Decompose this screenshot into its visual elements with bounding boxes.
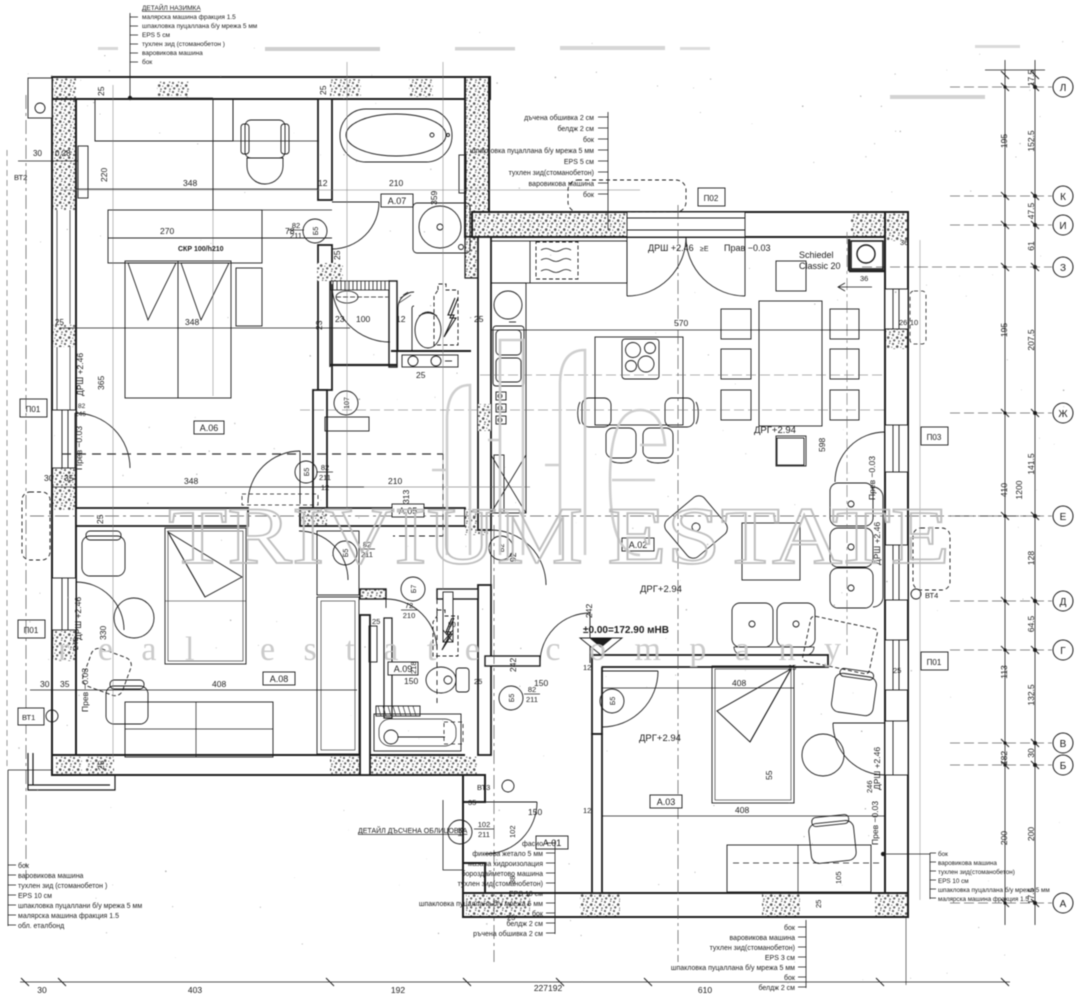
svg-text:Б5: Б5 <box>610 697 617 706</box>
svg-text:ДРГ+2.94: ДРГ+2.94 <box>754 425 796 436</box>
svg-text:П03: П03 <box>927 433 942 442</box>
svg-text:0.28: 0.28 <box>55 149 71 158</box>
svg-text:100: 100 <box>356 314 370 324</box>
svg-text:варовикова машина: варовикова машина <box>938 860 997 867</box>
svg-text:25: 25 <box>893 666 901 675</box>
svg-text:Прав −0.03: Прав −0.03 <box>724 243 771 253</box>
svg-text:бок: бок <box>18 862 30 870</box>
svg-text:35: 35 <box>468 798 476 807</box>
svg-text:бок: бок <box>532 910 544 918</box>
svg-text:П02: П02 <box>704 194 719 203</box>
svg-text:30: 30 <box>1026 748 1036 758</box>
svg-text:ДЕТАЙЛ ДЪСЧЕНА ОБЛИЦОВКА: ДЕТАЙЛ ДЪСЧЕНА ОБЛИЦОВКА <box>358 826 468 835</box>
svg-text:192: 192 <box>391 985 405 995</box>
svg-text:TRIVIUM ESTATE: TRIVIUM ESTATE <box>168 490 950 581</box>
svg-text:210: 210 <box>403 611 416 620</box>
svg-text:Classic 20: Classic 20 <box>799 261 841 271</box>
svg-text:шпакловка пуцаллана б/у мрежа: шпакловка пуцаллана б/у мрежа 5 мм <box>671 964 795 972</box>
svg-text:обл. еталбонд: обл. еталбонд <box>18 922 64 930</box>
svg-text:Прев −0.03: Прев −0.03 <box>870 801 880 845</box>
svg-text:30: 30 <box>37 985 47 995</box>
svg-text:мазана хидроизолация: мазана хидроизолация <box>468 861 543 868</box>
svg-text:64.5: 64.5 <box>1026 615 1036 632</box>
svg-text:408: 408 <box>732 678 746 688</box>
svg-text:25: 25 <box>95 514 105 524</box>
svg-text:132.5: 132.5 <box>1026 684 1036 706</box>
svg-text:25: 25 <box>474 677 482 686</box>
svg-text:12: 12 <box>583 806 591 815</box>
svg-text:EPS 5 см: EPS 5 см <box>142 32 170 39</box>
svg-text:55: 55 <box>764 770 774 780</box>
svg-text:Ж: Ж <box>1058 409 1068 420</box>
svg-text:EPS 10 см: EPS 10 см <box>18 893 52 900</box>
svg-text:Г: Г <box>1060 646 1066 657</box>
svg-text:113: 113 <box>999 665 1009 679</box>
svg-text:246: 246 <box>865 780 874 793</box>
svg-text:шпакловка пуцаллана б/у мрежа: шпакловка пуцаллана б/у мрежа 5 мм <box>938 886 1050 894</box>
svg-text:207.5: 207.5 <box>1026 329 1036 351</box>
svg-text:тухлен зид(стоманобетон): тухлен зид(стоманобетон) <box>938 868 1015 876</box>
svg-text:EPS 10 см: EPS 10 см <box>938 878 969 885</box>
svg-text:шпакловка пуцаллана б/у мрежа: шпакловка пуцаллана б/у мрежа 5 мм <box>470 147 594 155</box>
svg-text:570: 570 <box>674 318 688 328</box>
svg-text:128: 128 <box>1026 551 1036 565</box>
svg-text:598: 598 <box>817 438 827 452</box>
svg-text:78: 78 <box>285 226 295 236</box>
svg-text:варовикова машина: варовикова машина <box>730 935 796 942</box>
svg-text:ВТ3: ВТ3 <box>477 783 490 792</box>
svg-text:408: 408 <box>735 805 749 815</box>
svg-text:47.5: 47.5 <box>1026 202 1036 219</box>
svg-text:218: 218 <box>409 661 418 674</box>
svg-text:348: 348 <box>185 317 199 327</box>
svg-text:бок: бок <box>784 974 796 982</box>
svg-text:ВТ2: ВТ2 <box>14 173 27 182</box>
svg-text:365: 365 <box>96 376 106 390</box>
svg-text:25: 25 <box>474 314 484 324</box>
svg-text:A.08: A.08 <box>270 674 289 684</box>
svg-text:Прев −0.03: Прев −0.03 <box>74 426 84 470</box>
svg-text:А: А <box>1060 899 1067 910</box>
svg-text:348: 348 <box>184 476 198 486</box>
svg-text:25: 25 <box>416 370 426 380</box>
svg-text:359: 359 <box>429 191 439 205</box>
svg-text:246: 246 <box>75 411 86 418</box>
svg-text:210: 210 <box>389 178 403 188</box>
svg-text:фиксова жетало 5 мм: фиксова жетало 5 мм <box>472 851 543 858</box>
svg-text:25: 25 <box>55 318 64 327</box>
svg-text:72: 72 <box>405 601 413 610</box>
svg-text:61: 61 <box>1026 241 1036 251</box>
svg-text:195: 195 <box>999 134 1009 148</box>
svg-text:белдж 2 см: белдж 2 см <box>557 125 594 133</box>
svg-text:408: 408 <box>212 679 226 689</box>
svg-text:дъчена обшивка 2 см: дъчена обшивка 2 см <box>524 114 594 122</box>
svg-text:141.5: 141.5 <box>1026 453 1036 475</box>
svg-text:ДРШ +2.46: ДРШ +2.46 <box>75 353 85 396</box>
svg-text:тухлен зид (стоманобетон ): тухлен зид (стоманобетон ) <box>142 40 225 48</box>
svg-text:бок: бок <box>583 191 595 199</box>
svg-text:бок: бок <box>938 850 948 858</box>
svg-text:107: 107 <box>344 397 351 409</box>
svg-text:Б7: Б7 <box>411 585 418 594</box>
svg-text:К: К <box>1060 192 1066 203</box>
svg-text:220: 220 <box>99 168 109 182</box>
svg-text:Б5: Б5 <box>304 468 311 477</box>
svg-text:200: 200 <box>1026 827 1036 841</box>
svg-text:610: 610 <box>698 985 712 995</box>
svg-text:малярска машина фракция 1.5: малярска машина фракция 1.5 <box>938 896 1029 903</box>
svg-text:бок: бок <box>784 924 796 932</box>
svg-text:210: 210 <box>388 476 402 486</box>
svg-text:30: 30 <box>40 679 50 689</box>
svg-text:150: 150 <box>534 678 548 688</box>
svg-text:Schiedel: Schiedel <box>799 250 834 260</box>
svg-text:шпакловка пуцаллана б/у мрежа: шпакловка пуцаллана б/у мрежа 5 мм <box>419 900 543 908</box>
svg-text:82: 82 <box>321 463 329 472</box>
svg-text:102: 102 <box>478 820 491 829</box>
svg-text:25: 25 <box>332 250 342 260</box>
svg-text:12: 12 <box>396 314 406 324</box>
svg-text:бок: бок <box>583 136 595 144</box>
svg-text:Л: Л <box>1060 83 1067 94</box>
svg-text:Д: Д <box>1060 597 1067 608</box>
svg-text:150: 150 <box>528 807 542 817</box>
svg-text:36: 36 <box>860 274 868 283</box>
svg-text:варовикова машина: варовикова машина <box>142 50 203 57</box>
svg-text:ДРШ +2.46: ДРШ +2.46 <box>648 243 694 253</box>
svg-text:П01: П01 <box>927 658 942 667</box>
svg-text:227192: 227192 <box>534 983 563 993</box>
svg-text:тухлен зид(стоманобетон): тухлен зид(стоманобетон) <box>710 944 795 952</box>
svg-text:17.5: 17.5 <box>1026 69 1036 86</box>
svg-text:Б: Б <box>1060 761 1067 772</box>
svg-text:белдж 2 см: белдж 2 см <box>758 984 795 992</box>
svg-text:шпакловка пуцаллани б/у мрежа: шпакловка пуцаллани б/у мрежа 5 мм <box>18 902 142 910</box>
svg-text:A.03: A.03 <box>657 797 676 807</box>
svg-text:35: 35 <box>60 679 70 689</box>
svg-text:23: 23 <box>314 320 324 330</box>
svg-text:Б5: Б5 <box>313 227 320 236</box>
svg-text:EPS 5 см: EPS 5 см <box>564 159 594 166</box>
svg-text:30: 30 <box>33 149 42 158</box>
svg-text:EPS 10 см: EPS 10 см <box>509 891 543 898</box>
svg-text:25: 25 <box>96 86 106 96</box>
svg-text:ВТ4: ВТ4 <box>925 591 938 600</box>
svg-text:малярска машина фракция 1.5: малярска машина фракция 1.5 <box>142 14 236 21</box>
svg-text:ВТ1: ВТ1 <box>22 713 35 722</box>
svg-text:102: 102 <box>508 825 517 838</box>
svg-text:12: 12 <box>318 178 328 188</box>
svg-text:25: 25 <box>372 617 380 626</box>
svg-text:211: 211 <box>526 695 538 704</box>
svg-text:белдж 2 см: белдж 2 см <box>506 920 543 928</box>
svg-text:26-10: 26-10 <box>899 318 918 327</box>
svg-text:270: 270 <box>160 226 174 236</box>
svg-text:ръчена обшивка 2 см: ръчена обшивка 2 см <box>473 930 543 938</box>
svg-text:Е: Е <box>1060 512 1067 523</box>
svg-text:30: 30 <box>44 473 54 483</box>
svg-text:ДРГ+2.94: ДРГ+2.94 <box>640 584 682 595</box>
svg-text:варовикова машина: варовикова машина <box>18 873 84 880</box>
svg-text:A.07: A.07 <box>388 196 407 206</box>
svg-text:СКР 100/h210: СКР 100/h210 <box>178 246 224 253</box>
svg-text:23: 23 <box>335 314 345 324</box>
svg-text:36: 36 <box>900 238 908 247</box>
svg-text:348: 348 <box>183 178 197 188</box>
svg-text:И: И <box>1059 221 1066 232</box>
svg-text:50: 50 <box>448 622 456 629</box>
svg-text:211: 211 <box>319 473 331 482</box>
svg-text:242: 242 <box>584 604 594 618</box>
svg-text:шпакловка пуцаллана б/у мрежа: шпакловка пуцаллана б/у мрежа 5 мм <box>142 22 258 30</box>
svg-text:82: 82 <box>78 403 86 410</box>
svg-text:тухлен зид (стоманобетон ): тухлен зид (стоманобетон ) <box>18 882 107 890</box>
svg-text:фасио: фасио <box>522 841 543 848</box>
svg-text:A.06: A.06 <box>200 423 219 433</box>
svg-text:≥Е: ≥Е <box>700 246 709 253</box>
svg-text:Прев −0.03: Прев −0.03 <box>80 668 90 712</box>
svg-text:403: 403 <box>188 985 202 995</box>
svg-text:варовикова машина: варовикова машина <box>529 181 595 188</box>
svg-text:182: 182 <box>999 751 1009 765</box>
svg-text:Б5: Б5 <box>509 694 516 703</box>
svg-text:тухлен зид(стоманобетон): тухлен зид(стоманобетон) <box>509 169 594 177</box>
svg-text:195: 195 <box>999 323 1009 337</box>
svg-text:105: 105 <box>834 871 843 884</box>
svg-text:бороздайметово машина: бороздайметово машина <box>461 870 543 878</box>
svg-text:тухлен зид(стоманобетон): тухлен зид(стоманобетон) <box>458 880 543 888</box>
svg-text:35: 35 <box>64 473 74 483</box>
svg-text:200: 200 <box>999 831 1009 845</box>
svg-text:410: 410 <box>999 483 1009 497</box>
svg-text:малярска машина фракция 1.5: малярска машина фракция 1.5 <box>18 913 119 920</box>
svg-text:211: 211 <box>478 830 490 839</box>
svg-text:В: В <box>1060 739 1067 750</box>
svg-text:25: 25 <box>814 900 823 908</box>
svg-text:П01: П01 <box>26 405 41 414</box>
svg-text:EPS 3 см: EPS 3 см <box>765 955 795 962</box>
svg-text:ДЕТАЙЛ НАЗИМКА: ДЕТАЙЛ НАЗИМКА <box>142 3 201 12</box>
svg-text:ДРГ+2.94: ДРГ+2.94 <box>639 733 681 744</box>
svg-text:З: З <box>1060 263 1066 274</box>
svg-text:152.5: 152.5 <box>1026 130 1036 152</box>
svg-text:бок: бок <box>142 58 152 66</box>
svg-text:25: 25 <box>318 85 328 95</box>
svg-text:150: 150 <box>404 676 418 686</box>
svg-text:1200: 1200 <box>1014 480 1024 499</box>
